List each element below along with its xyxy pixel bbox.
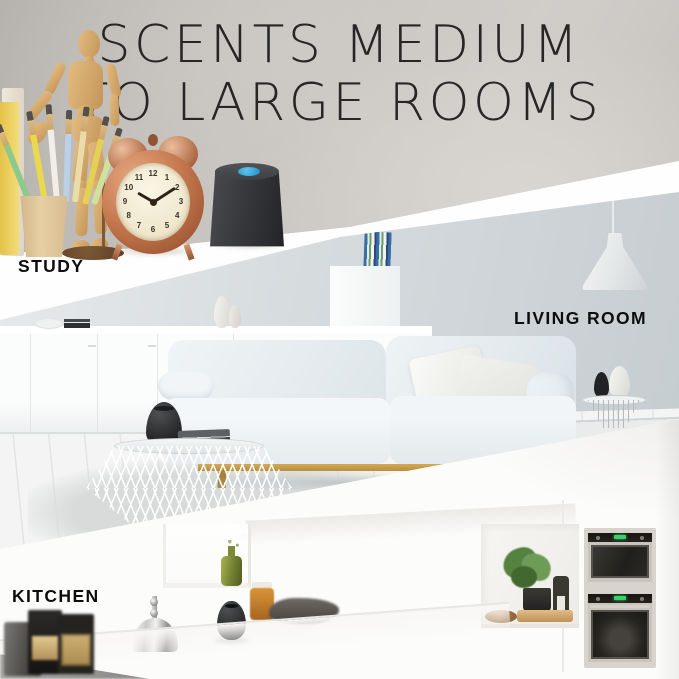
clock-numeral: 12 — [148, 169, 158, 178]
clock-numeral: 2 — [172, 183, 182, 192]
bell-knob2 — [150, 609, 158, 617]
alarm-clock: 121234567891011 — [102, 132, 204, 260]
clock-numeral: 4 — [172, 211, 182, 220]
microwave-control-bar — [588, 533, 652, 542]
clock-numeral: 6 — [148, 225, 158, 234]
canister-gold-label — [32, 636, 58, 660]
study-label: STUDY — [18, 256, 84, 277]
microwave-knob — [596, 536, 600, 540]
microwave-oven — [588, 533, 652, 582]
clock-leg — [111, 243, 122, 260]
clock-numeral: 7 — [134, 221, 144, 230]
plant-leaves3 — [511, 566, 537, 588]
right-edge-shade — [656, 420, 679, 679]
diffuser-top — [225, 604, 238, 608]
wine-bottle-label — [557, 596, 565, 610]
clock-numeral: 5 — [162, 221, 172, 230]
mannequin-forearm-right — [109, 94, 119, 126]
kitchen-label: KITCHEN — [12, 586, 100, 607]
product-collage-canvas: SCENTS MEDIUM TO LARGE ROOMS — [0, 0, 679, 679]
tea-canisters — [4, 608, 99, 678]
oven-knob — [640, 597, 644, 601]
clock-numeral: 3 — [176, 197, 186, 206]
clock-numeral: 8 — [124, 211, 134, 220]
oven-glass — [591, 610, 649, 659]
canister-black2 — [58, 614, 94, 674]
microwave-display-led — [614, 535, 626, 539]
clock-numeral: 9 — [120, 197, 130, 206]
clock-hammer — [148, 134, 158, 146]
microwave-glass — [591, 545, 649, 578]
diffuser-power-button — [238, 167, 260, 176]
clock-numeral: 1 — [162, 173, 172, 182]
green-bottle-vase — [221, 556, 242, 586]
mannequin-torso — [68, 61, 103, 109]
canister-gold-label2 — [61, 634, 91, 666]
mannequin-head — [78, 30, 100, 58]
clock-leg-right — [183, 243, 194, 260]
microwave-knob — [640, 536, 644, 540]
cutting-board — [517, 610, 573, 622]
oven-display-led — [614, 596, 626, 600]
clock-face: 121234567891011 — [116, 163, 190, 241]
canister-black — [28, 610, 62, 674]
diffuser-study — [210, 163, 284, 249]
oven-knob — [596, 597, 600, 601]
main-oven — [588, 594, 652, 662]
plant-pot — [523, 588, 551, 612]
bell-knob — [150, 598, 158, 606]
wall-oven-column — [584, 528, 656, 668]
oven-control-bar — [588, 594, 652, 603]
clock-numeral: 11 — [134, 173, 144, 182]
clock-numeral: 10 — [124, 183, 134, 192]
oven-handle — [590, 605, 650, 608]
clock-center-pin — [150, 199, 157, 206]
mannequin-arm-right — [105, 63, 122, 98]
